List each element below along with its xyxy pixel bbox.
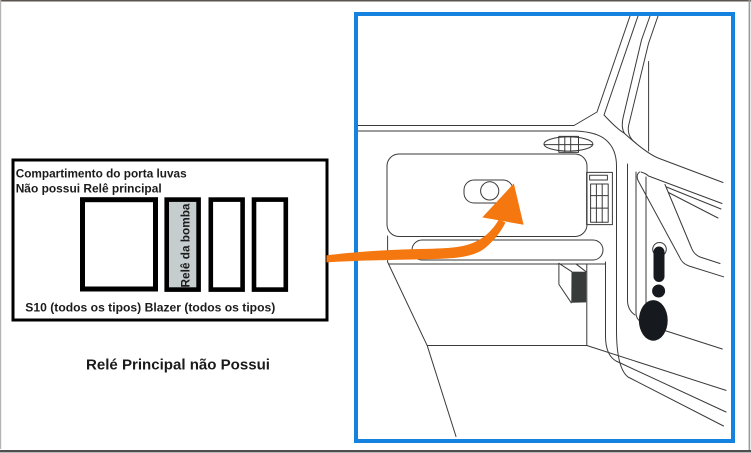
svg-text:S10 (todos os tipos) Blazer (t: S10 (todos os tipos) Blazer (todos os ti… xyxy=(25,300,275,314)
svg-text:Relé Principal não Possui: Relé Principal não Possui xyxy=(86,357,270,374)
svg-text:Não possui Relê principal: Não possui Relê principal xyxy=(16,182,162,196)
svg-text:Compartimento do porta luvas: Compartimento do porta luvas xyxy=(16,167,187,181)
svg-text:Relê da bomba: Relê da bomba xyxy=(178,203,192,287)
